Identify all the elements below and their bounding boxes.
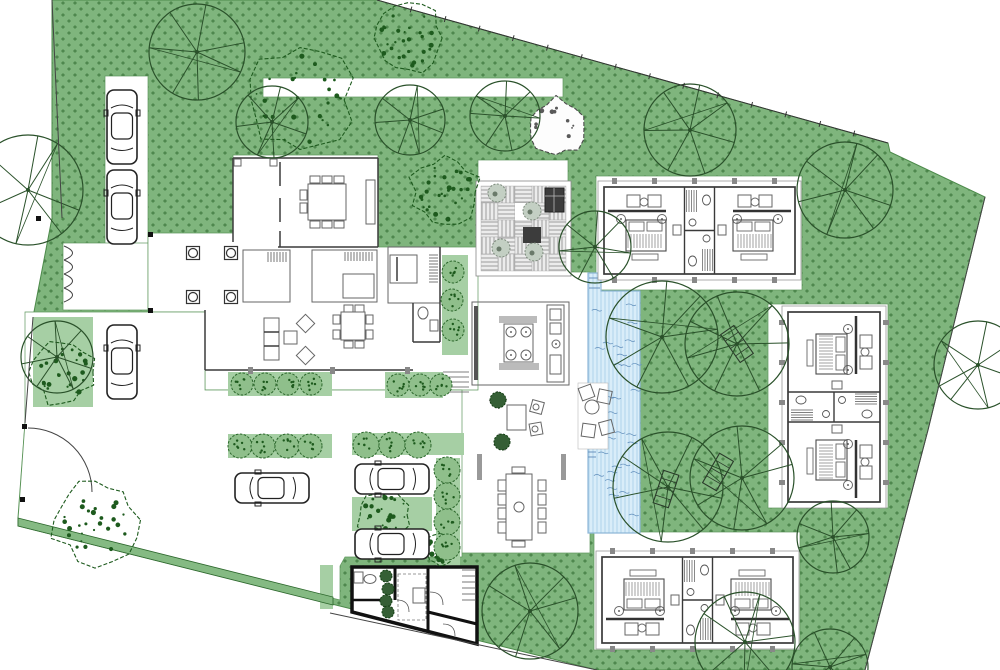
site-plan xyxy=(0,0,1000,670)
planter-bush xyxy=(379,432,405,458)
planter-bush xyxy=(409,374,431,396)
planter-bush xyxy=(434,457,460,483)
planter-bush xyxy=(254,373,276,395)
guest-villa-south xyxy=(596,548,799,652)
potted-plant xyxy=(380,595,392,607)
potted-plant xyxy=(490,392,506,408)
potted-plant xyxy=(494,434,510,450)
car xyxy=(355,526,429,562)
planter-bush xyxy=(277,373,299,395)
dark-paver xyxy=(523,227,541,243)
guest-villa-east xyxy=(779,306,889,508)
pool-lounge-nook xyxy=(578,383,608,449)
planter-bush xyxy=(442,261,464,283)
planter-bush xyxy=(298,434,322,458)
planter-bush xyxy=(434,509,460,535)
car xyxy=(104,325,140,399)
potted-plant xyxy=(380,570,392,582)
planter-bush xyxy=(405,432,431,458)
guest-villa-north xyxy=(598,178,801,283)
service-building xyxy=(352,567,477,644)
planter-bush xyxy=(231,373,253,395)
planter-bush xyxy=(228,434,252,458)
site-plan-page xyxy=(0,0,1000,670)
planter-bush xyxy=(434,483,460,509)
planter-bush xyxy=(442,319,464,341)
outdoor-shower-pad xyxy=(545,188,564,212)
planter-bush xyxy=(353,432,379,458)
potted-plant xyxy=(382,583,394,595)
car xyxy=(355,461,429,497)
car xyxy=(104,90,140,164)
planter-bush xyxy=(275,434,299,458)
car xyxy=(104,170,140,244)
potted-plant xyxy=(382,606,394,618)
planter-bush xyxy=(441,289,463,311)
planter-bush xyxy=(387,374,409,396)
car xyxy=(235,470,309,506)
